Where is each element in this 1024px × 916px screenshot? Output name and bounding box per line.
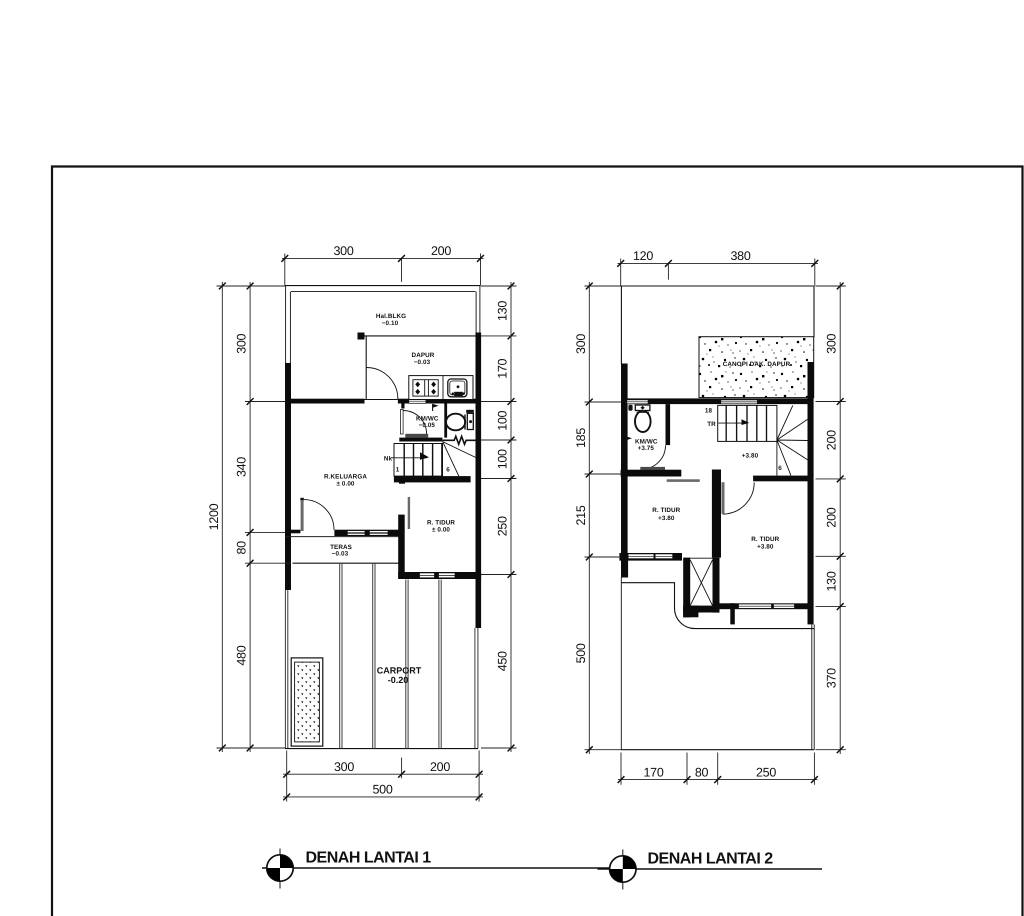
- svg-text:R.KELUARGA: R.KELUARGA: [324, 473, 367, 480]
- svg-text:Nk: Nk: [384, 456, 393, 463]
- svg-text:R. TIDUR: R. TIDUR: [652, 507, 680, 514]
- svg-text:300: 300: [235, 333, 249, 353]
- svg-text:DENAH LANTAI 1: DENAH LANTAI 1: [306, 850, 432, 867]
- svg-text:DENAH LANTAI 2: DENAH LANTAI 2: [648, 851, 774, 868]
- svg-text:1: 1: [396, 467, 400, 474]
- svg-text:300: 300: [574, 334, 588, 354]
- svg-text:R. TIDUR: R. TIDUR: [751, 536, 779, 543]
- svg-text:500: 500: [574, 643, 588, 663]
- svg-text:DAPUR: DAPUR: [412, 352, 435, 359]
- svg-text:Hal.BLKG: Hal.BLKG: [376, 313, 406, 320]
- svg-text:R. TIDUR: R. TIDUR: [427, 519, 455, 526]
- svg-text:130: 130: [496, 301, 510, 321]
- svg-text:215: 215: [574, 505, 588, 525]
- svg-text:120: 120: [633, 249, 653, 263]
- svg-text:170: 170: [644, 765, 664, 779]
- svg-text:80: 80: [695, 765, 709, 779]
- svg-text:450: 450: [496, 651, 510, 671]
- svg-text:± 0.00: ± 0.00: [432, 526, 450, 533]
- svg-text:185: 185: [574, 428, 588, 448]
- svg-text:200: 200: [430, 760, 450, 774]
- svg-text:300: 300: [334, 760, 354, 774]
- svg-text:250: 250: [756, 765, 776, 779]
- svg-text:+3.80: +3.80: [757, 543, 774, 550]
- svg-text:300: 300: [824, 333, 838, 353]
- svg-text:340: 340: [235, 457, 249, 477]
- svg-text:TR: TR: [707, 421, 716, 428]
- svg-text:6: 6: [446, 467, 450, 474]
- svg-text:1200: 1200: [207, 503, 221, 530]
- svg-text:−0.03: −0.03: [332, 551, 349, 558]
- svg-text:100: 100: [496, 449, 510, 469]
- svg-text:−0.05: −0.05: [419, 422, 436, 429]
- svg-text:18: 18: [705, 407, 713, 414]
- svg-text:300: 300: [334, 244, 354, 258]
- svg-text:80: 80: [235, 541, 249, 555]
- svg-text:CANOPI DAK. DAPUR: CANOPI DAK. DAPUR: [723, 361, 791, 368]
- svg-text:370: 370: [824, 668, 838, 688]
- svg-text:+3.80: +3.80: [658, 515, 675, 522]
- svg-text:250: 250: [496, 516, 510, 536]
- svg-text:200: 200: [431, 244, 451, 258]
- svg-text:380: 380: [731, 249, 751, 263]
- svg-text:−0.10: −0.10: [382, 320, 399, 327]
- svg-text:200: 200: [824, 507, 838, 527]
- svg-text:-0.20: -0.20: [388, 675, 409, 685]
- svg-text:130: 130: [824, 571, 838, 591]
- svg-text:100: 100: [496, 410, 510, 430]
- svg-text:500: 500: [373, 783, 393, 797]
- svg-text:+3.80: +3.80: [742, 452, 759, 459]
- svg-text:170: 170: [496, 358, 510, 378]
- svg-text:+3.75: +3.75: [638, 445, 655, 452]
- svg-text:−0.03: −0.03: [414, 359, 431, 366]
- svg-text:480: 480: [235, 645, 249, 665]
- svg-text:± 0.00: ± 0.00: [336, 480, 354, 487]
- svg-text:200: 200: [824, 430, 838, 450]
- svg-text:6: 6: [778, 465, 782, 472]
- svg-text:CARPORT: CARPORT: [377, 665, 422, 675]
